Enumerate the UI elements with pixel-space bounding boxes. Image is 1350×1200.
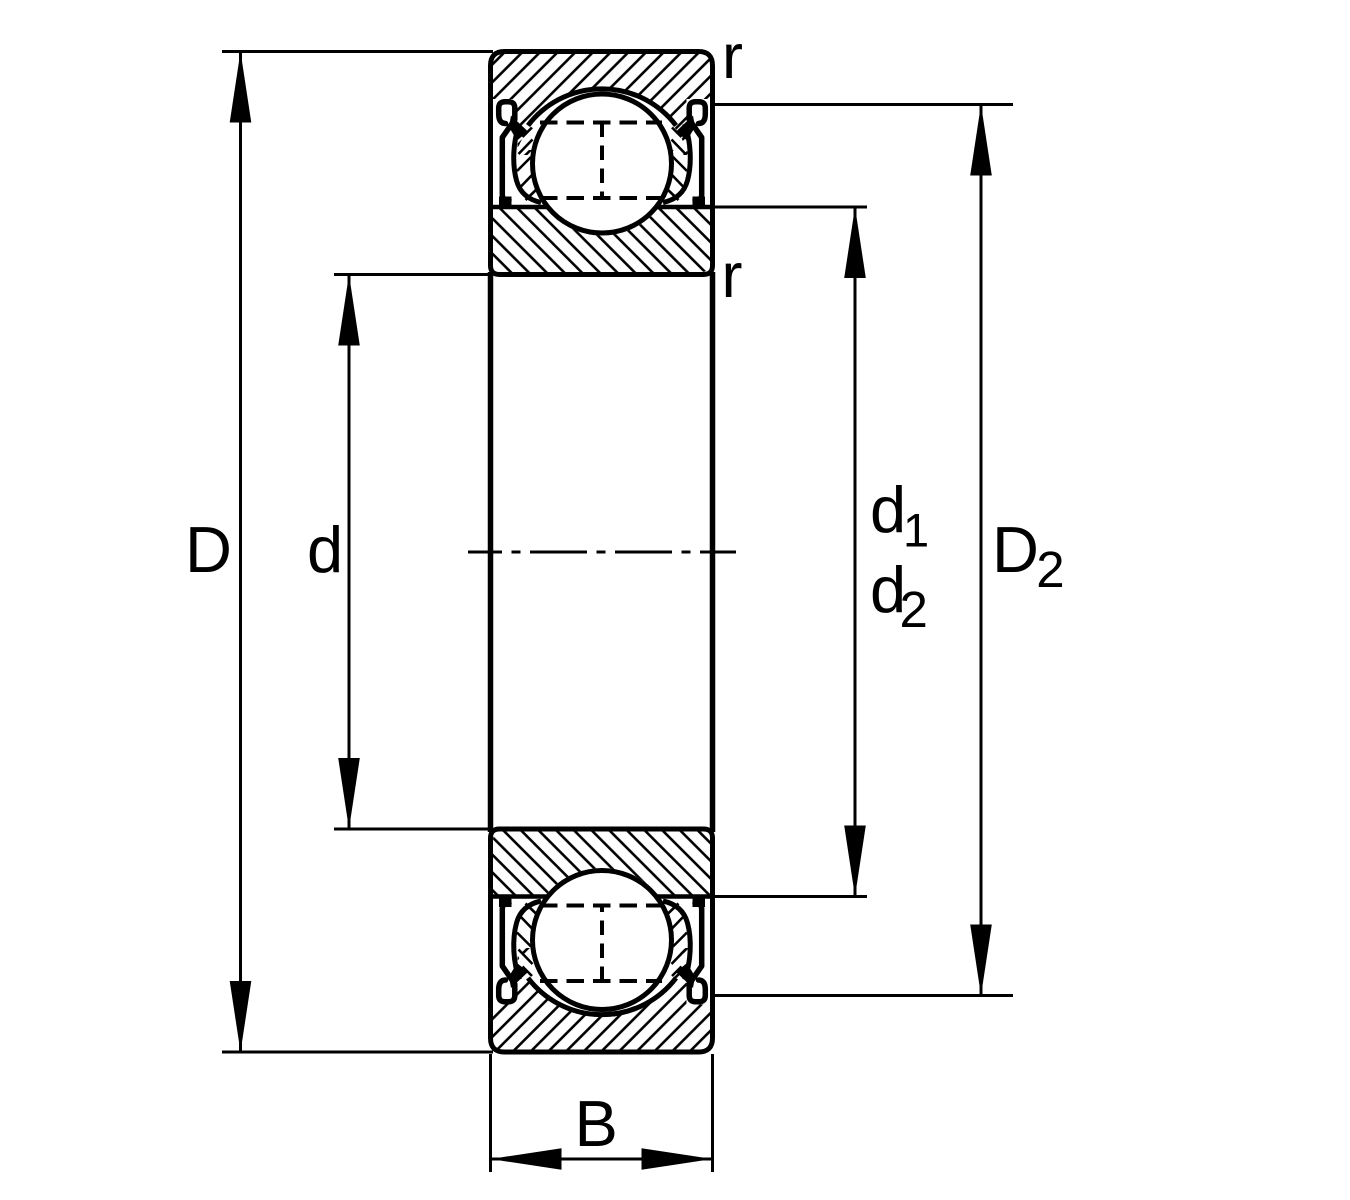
- svg-text:D: D: [185, 513, 232, 586]
- svg-text:r: r: [722, 241, 743, 311]
- svg-text:B: B: [575, 1087, 618, 1160]
- svg-text:r: r: [722, 22, 743, 92]
- svg-text:2: 2: [900, 581, 928, 638]
- svg-text:1: 1: [903, 504, 929, 557]
- svg-text:2: 2: [1036, 541, 1064, 598]
- svg-text:d: d: [307, 513, 343, 586]
- svg-text:d: d: [870, 473, 906, 546]
- svg-text:D: D: [992, 513, 1039, 586]
